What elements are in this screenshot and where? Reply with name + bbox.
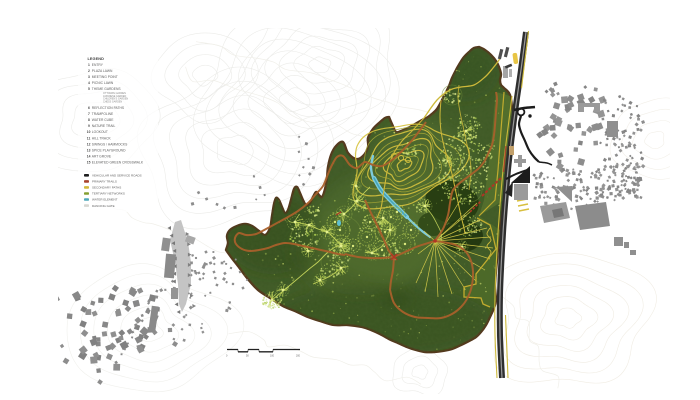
svg-text:14: 14 — [87, 155, 91, 159]
svg-text:6: 6 — [88, 106, 90, 110]
svg-text:4: 4 — [88, 81, 90, 85]
svg-text:ART GROVE: ART GROVE — [92, 155, 112, 159]
svg-text:THEME GARDENS: THEME GARDENS — [92, 87, 122, 91]
svg-text:200: 200 — [296, 355, 301, 358]
svg-text:NATURE TRAIL: NATURE TRAIL — [92, 124, 116, 128]
svg-text:12: 12 — [87, 142, 91, 146]
svg-text:10: 10 — [87, 130, 91, 134]
svg-text:SWINGS / HAMMOCKS: SWINGS / HAMMOCKS — [92, 142, 128, 146]
svg-text:7: 7 — [88, 112, 90, 116]
svg-text:HILL TRACK: HILL TRACK — [92, 136, 112, 140]
svg-text:11: 11 — [87, 136, 91, 140]
svg-text:13: 13 — [87, 149, 91, 153]
svg-text:3: 3 — [88, 75, 90, 79]
svg-text:LOOKOUT: LOOKOUT — [92, 130, 108, 134]
svg-text:PRIMARY TRAILS: PRIMARY TRAILS — [92, 180, 117, 184]
svg-text:SECONDARY PATHS: SECONDARY PATHS — [92, 186, 121, 190]
svg-text:LEGEND: LEGEND — [88, 57, 105, 61]
svg-text:15: 15 — [87, 161, 91, 165]
svg-text:CHESS GARDEN: CHESS GARDEN — [103, 101, 122, 104]
svg-text:100: 100 — [270, 355, 275, 358]
svg-text:SPICE PLAYGROUND: SPICE PLAYGROUND — [92, 149, 126, 153]
svg-text:ENTRY: ENTRY — [92, 63, 104, 67]
svg-text:VEHICULAR AND SERVICE ROADS: VEHICULAR AND SERVICE ROADS — [92, 174, 142, 178]
svg-text:8: 8 — [88, 118, 90, 122]
svg-text:ELEVATED GREEN CROSSWALK: ELEVATED GREEN CROSSWALK — [92, 161, 144, 165]
svg-text:MEETING POINT: MEETING POINT — [92, 75, 118, 79]
svg-text:TERTIARY NETWORKS: TERTIARY NETWORKS — [92, 192, 125, 196]
svg-text:1: 1 — [88, 63, 90, 67]
svg-text:9: 9 — [88, 124, 90, 128]
svg-text:5: 5 — [88, 87, 90, 91]
svg-text:PICNIC LAWN: PICNIC LAWN — [92, 81, 114, 85]
svg-text:DANCING GATE: DANCING GATE — [92, 204, 115, 208]
svg-text:WATER ELEMENT: WATER ELEMENT — [92, 198, 118, 202]
svg-text:TRAMPOLINE: TRAMPOLINE — [92, 112, 114, 116]
svg-text:2: 2 — [88, 69, 90, 73]
svg-text:PLAZA LAWN: PLAZA LAWN — [92, 69, 113, 73]
svg-text:REFLECTION PATHS: REFLECTION PATHS — [92, 106, 125, 110]
svg-text:WATER CUBE: WATER CUBE — [92, 118, 114, 122]
